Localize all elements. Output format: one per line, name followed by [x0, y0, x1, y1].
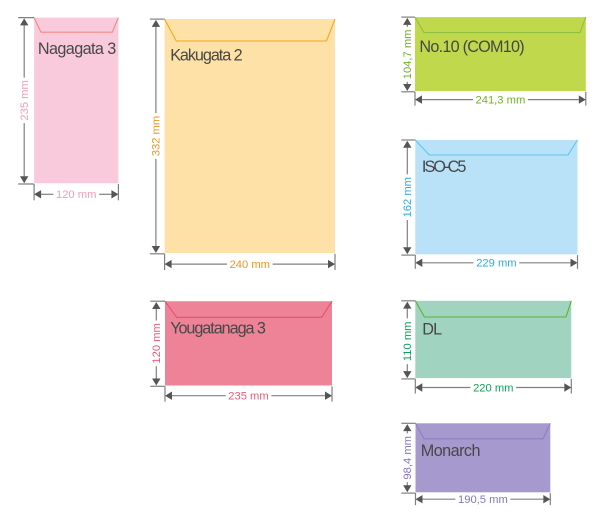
svg-text:120 mm: 120 mm	[56, 189, 96, 201]
svg-text:162 mm: 162 mm	[402, 177, 414, 217]
svg-text:110 mm: 110 mm	[402, 322, 414, 362]
svg-text:240 mm: 240 mm	[230, 259, 270, 271]
svg-text:120 mm: 120 mm	[151, 323, 163, 363]
svg-text:332 mm: 332 mm	[151, 116, 163, 156]
svg-text:Nagagata 3: Nagagata 3	[38, 40, 116, 58]
svg-text:No.10 (COM10): No.10 (COM10)	[419, 38, 524, 56]
svg-text:Yougatanaga 3: Yougatanaga 3	[170, 320, 266, 338]
svg-text:190,5 mm: 190,5 mm	[458, 494, 508, 506]
svg-text:ISO-C5: ISO-C5	[422, 158, 466, 176]
svg-text:229 mm: 229 mm	[476, 258, 516, 270]
svg-text:220 mm: 220 mm	[473, 382, 513, 394]
svg-text:241,3 mm: 241,3 mm	[476, 94, 526, 106]
svg-text:235 mm: 235 mm	[19, 80, 31, 120]
svg-text:104,7 mm: 104,7 mm	[402, 30, 414, 80]
svg-text:DL: DL	[422, 321, 442, 339]
svg-text:Kakugata 2: Kakugata 2	[170, 46, 242, 64]
svg-text:Monarch: Monarch	[421, 442, 480, 460]
svg-text:235 mm: 235 mm	[228, 391, 268, 403]
svg-text:98,4 mm: 98,4 mm	[402, 436, 414, 480]
